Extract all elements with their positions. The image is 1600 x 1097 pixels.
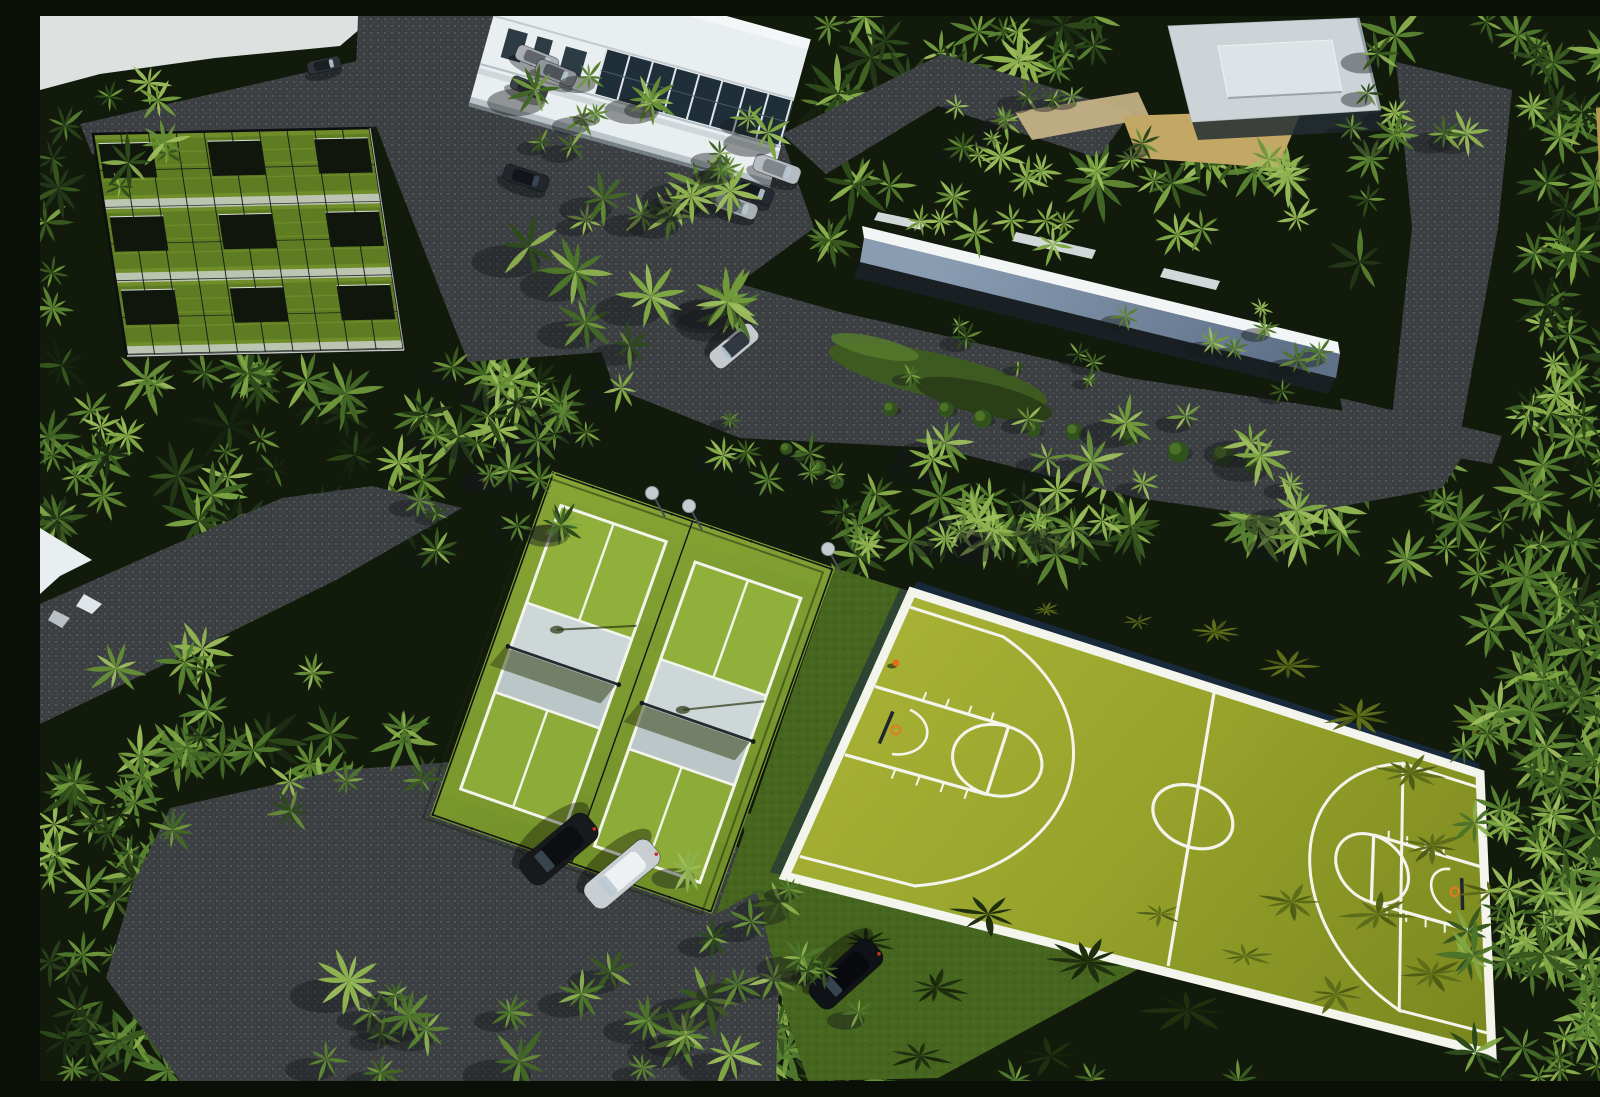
aerial-photo bbox=[40, 16, 1600, 1081]
pole-shadow bbox=[676, 706, 690, 714]
net-bay bbox=[325, 211, 384, 247]
shrub-highlight bbox=[884, 403, 892, 411]
palm-shadow bbox=[540, 145, 577, 163]
net-post bbox=[506, 644, 511, 649]
person-in-orange bbox=[893, 660, 900, 667]
shrub-highlight bbox=[975, 411, 985, 421]
net-bay bbox=[314, 138, 373, 174]
palm-shadow bbox=[815, 474, 841, 486]
shrub-highlight bbox=[940, 403, 949, 412]
shrub-highlight bbox=[781, 443, 788, 450]
floodlight-head bbox=[822, 543, 835, 556]
floodlight-head bbox=[683, 500, 696, 513]
scene-canvas bbox=[40, 16, 1600, 1081]
shrub-highlight bbox=[1170, 443, 1182, 455]
net-bay bbox=[219, 213, 278, 249]
palm-shadow bbox=[559, 76, 595, 93]
floodlight-head bbox=[646, 487, 659, 500]
pole-shadow bbox=[550, 626, 564, 634]
net-post bbox=[616, 682, 621, 687]
shrub-highlight bbox=[1067, 424, 1076, 433]
net-post bbox=[640, 701, 645, 706]
net-bay bbox=[110, 216, 169, 252]
net-bay bbox=[337, 285, 396, 321]
net-post bbox=[751, 739, 756, 744]
net-bay bbox=[230, 287, 289, 323]
raised-roof-panel bbox=[1218, 40, 1342, 98]
net-bay bbox=[121, 289, 180, 325]
net-bay bbox=[207, 140, 266, 176]
palm-shadow bbox=[720, 118, 755, 135]
palm-shadow bbox=[1268, 359, 1304, 376]
